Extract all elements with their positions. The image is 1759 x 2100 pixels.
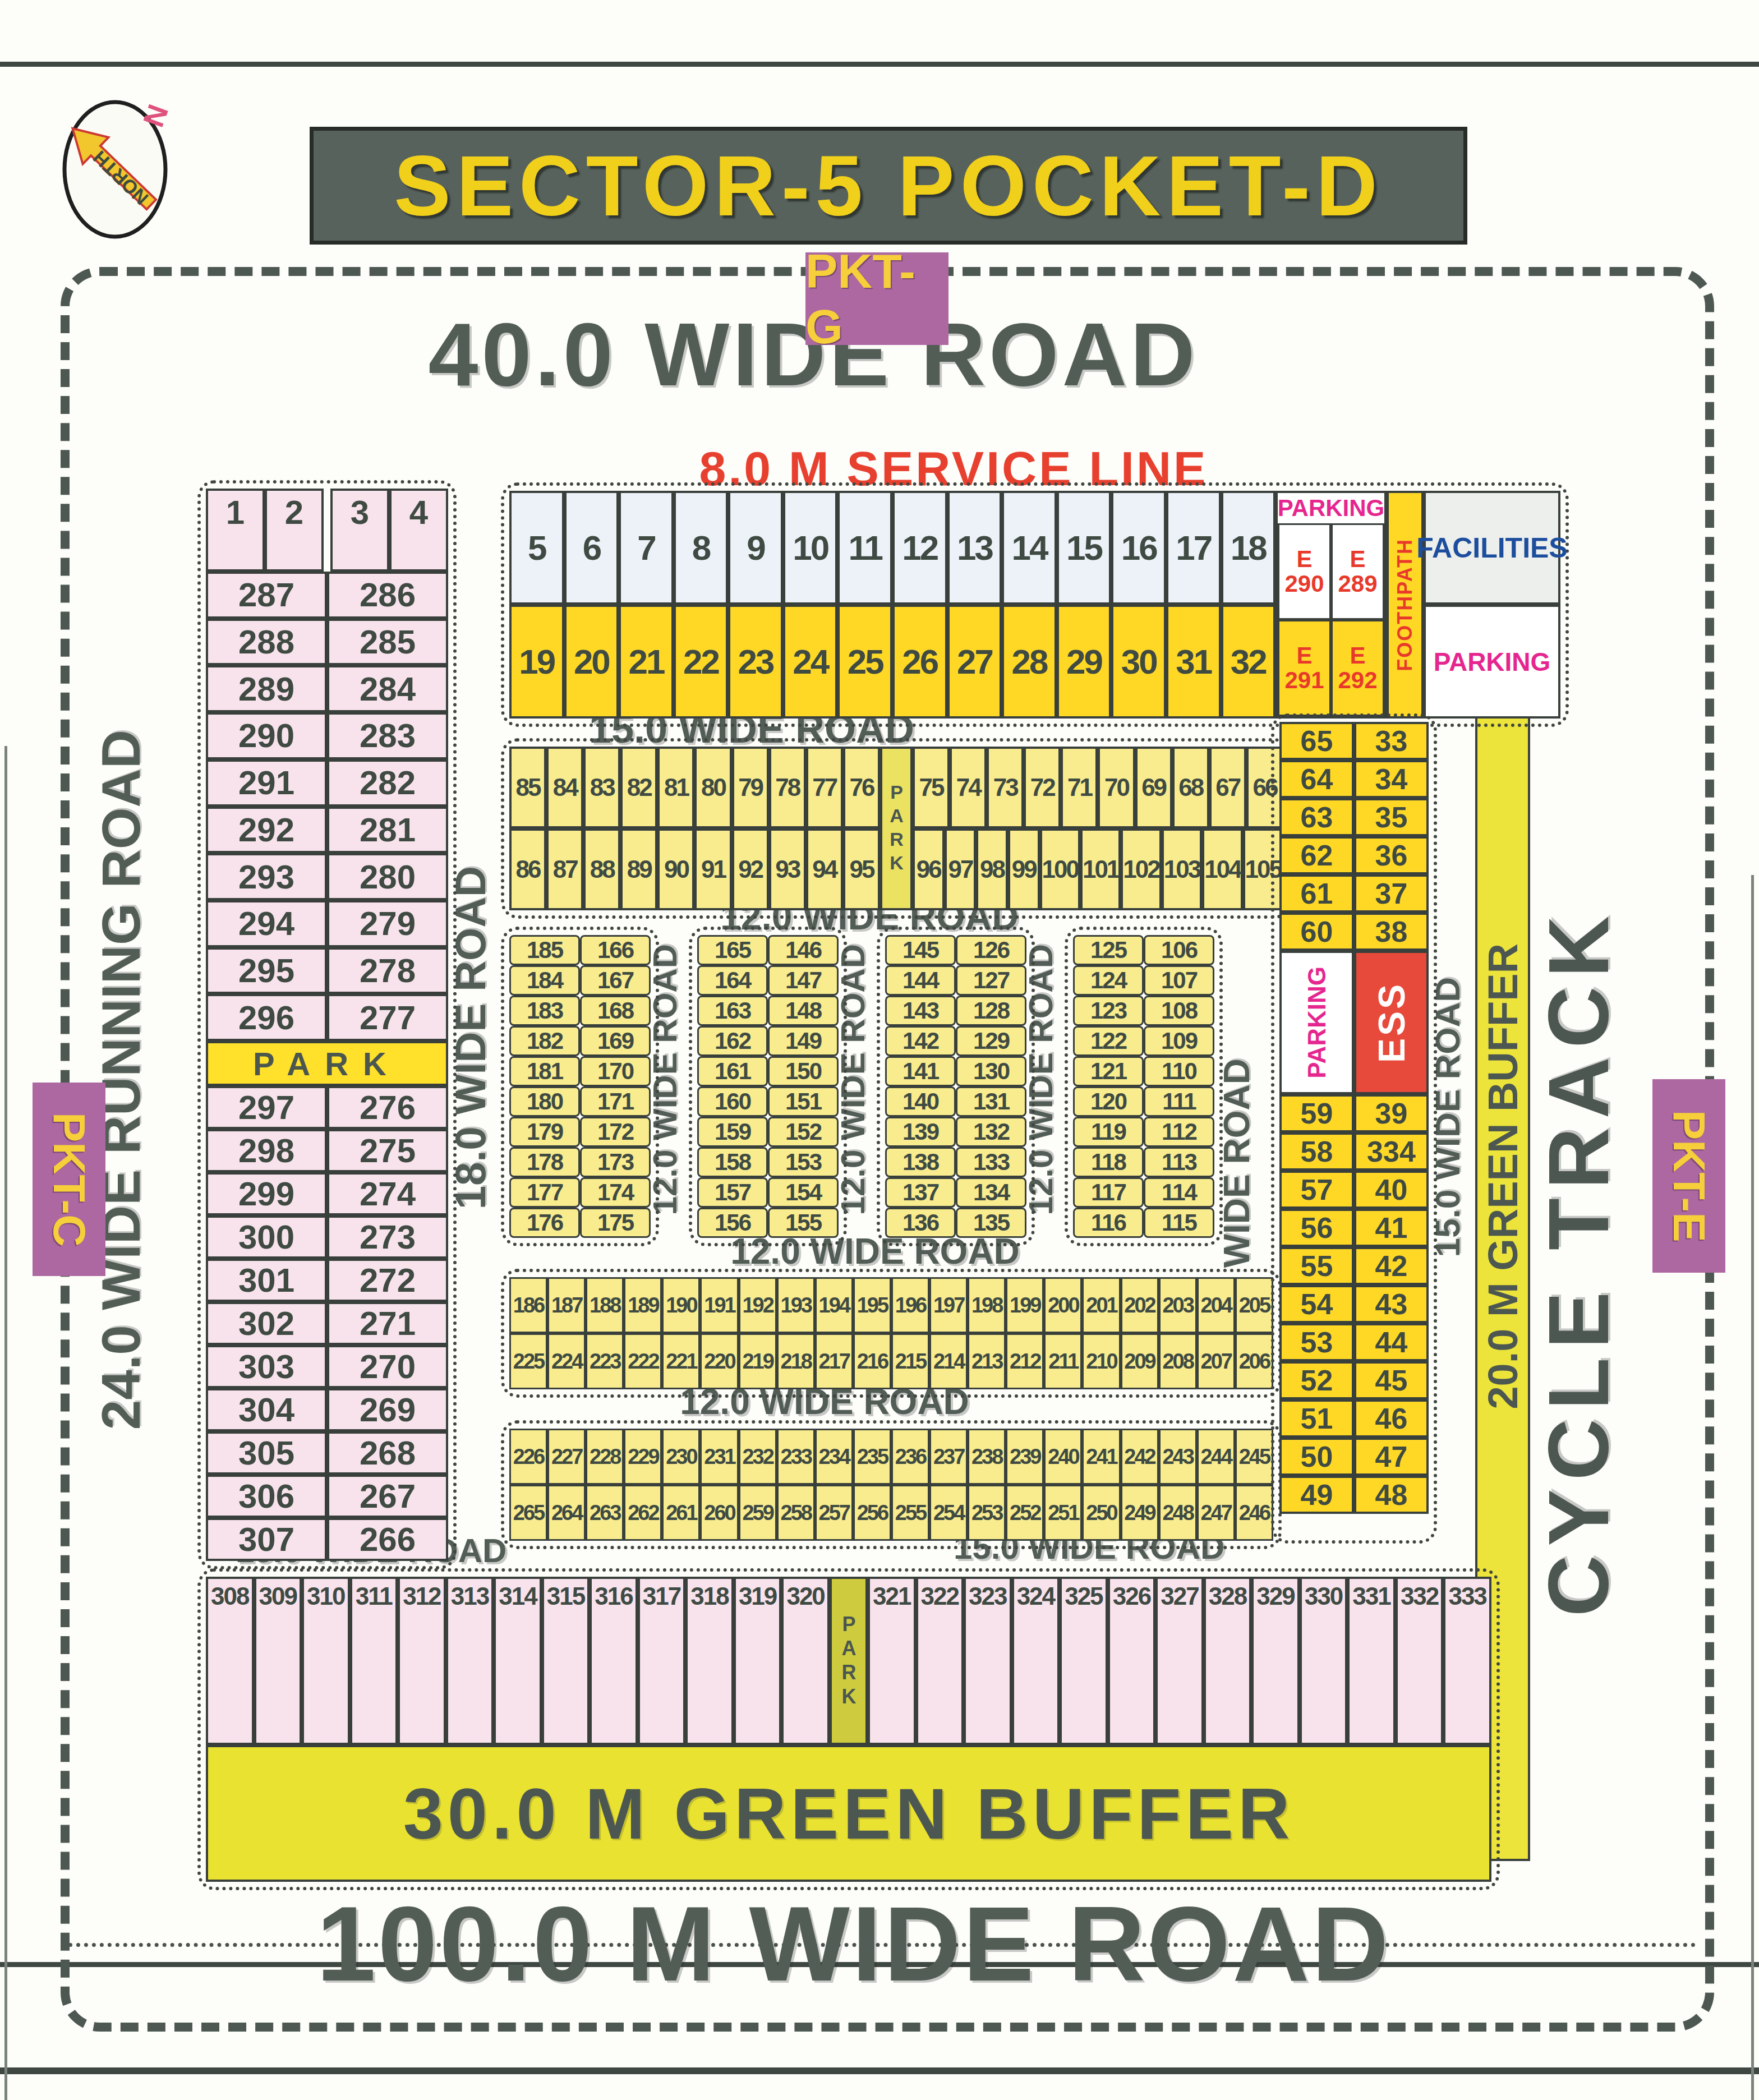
plot-cell: 180: [509, 1086, 580, 1117]
plot-cell: 126: [956, 935, 1026, 965]
plot-cell: 17: [1166, 491, 1221, 605]
plot-cell: 59: [1279, 1094, 1354, 1132]
plot-cell: 331: [1347, 1577, 1396, 1745]
plot-cell: 173: [580, 1147, 651, 1177]
plot-pair-row: 158153: [697, 1147, 839, 1177]
plot-cell: 23: [728, 605, 783, 719]
e-cells-top: E290E289: [1278, 523, 1384, 620]
plot-cell: 172: [580, 1117, 651, 1147]
block-b-row1: 1861871881891901911921931941951961971981…: [509, 1277, 1273, 1333]
plot-pair-row: 181170: [509, 1056, 651, 1086]
plot-cell: 303: [206, 1345, 327, 1388]
plot-pair-row: 300273: [206, 1215, 448, 1259]
plot-pair-row: 177174: [509, 1177, 651, 1208]
plot-cell: 124: [1073, 965, 1144, 996]
plot-cell: 311: [350, 1577, 398, 1745]
plot-cell: 5: [509, 491, 564, 605]
plot-pair-row: 142129: [885, 1026, 1026, 1056]
plot-cell: 7: [619, 491, 674, 605]
plot-cell: 48: [1354, 1476, 1429, 1514]
plot-cell: 46: [1354, 1399, 1429, 1438]
plot-cell: 120: [1073, 1086, 1144, 1117]
plot-cell: 140: [885, 1086, 956, 1117]
plot-pair-row: 159152: [697, 1117, 839, 1147]
plot-cell: 244: [1197, 1429, 1235, 1485]
block-a-row1-right: 75747372717069686766: [913, 747, 1283, 828]
pocket-tag-c-label: PKT-C: [43, 1112, 95, 1247]
plot-cell: 316: [590, 1577, 638, 1745]
green-buffer-30m-strip: 30.0 M GREEN BUFFER: [206, 1745, 1491, 1882]
facilities-cell: FACILITIES: [1424, 491, 1560, 605]
plot-cell: 84: [546, 747, 583, 828]
plot-cell: 29: [1057, 605, 1112, 719]
plot-cell: 240: [1044, 1429, 1082, 1485]
plot-cell: 31: [1166, 605, 1221, 719]
plot-cell: 326: [1108, 1577, 1156, 1745]
plot-cell: 148: [768, 996, 839, 1026]
road-label-100-wide: 100.0 M WIDE ROAD: [197, 1882, 1510, 2005]
plot-cell: 164: [697, 965, 768, 996]
foothpath-label: FOOTHPATH: [1393, 538, 1417, 671]
plot-cell: 181: [509, 1056, 580, 1086]
plot-pair-row: 5146: [1279, 1399, 1429, 1438]
plot-cell: 64: [1279, 760, 1354, 798]
plot-cell: 96: [913, 828, 945, 910]
plot-cell: 77: [806, 747, 843, 828]
plot-cell: 281: [327, 807, 448, 854]
plot-cell: 207: [1197, 1333, 1235, 1389]
plot-cell: 152: [768, 1117, 839, 1147]
plot-cell: 233: [777, 1429, 815, 1485]
pocket-tag-e: PKT-E: [1652, 1079, 1725, 1273]
plot-pair-row: 6335: [1279, 798, 1429, 836]
plot-cell: 130: [956, 1056, 1026, 1086]
plot-cell: 44: [1354, 1323, 1429, 1361]
plot-cell: 183: [509, 996, 580, 1026]
plot-cell: 304: [206, 1388, 327, 1431]
park-strip-block-a: PARK: [880, 747, 913, 910]
plot-cell: 167: [580, 965, 651, 996]
plot-pair-row: 182169: [509, 1026, 651, 1056]
plot-pair-row: 297276: [206, 1086, 448, 1129]
plot-cell: 313: [446, 1577, 494, 1745]
plot-cell: 63: [1279, 798, 1354, 836]
right-special-row: PARKING ESS: [1279, 951, 1429, 1094]
service-strip-block: 56789101112131415161718 1920212223242526…: [501, 482, 1569, 727]
plot-pair-row: 307266: [206, 1518, 448, 1561]
plot-cell: 322: [916, 1577, 964, 1745]
plot-cell: 81: [657, 747, 694, 828]
plot-cell: 54: [1279, 1285, 1354, 1323]
plot-cell: 143: [885, 996, 956, 1026]
block-c-row2: 2652642632622612602592582572562552542532…: [509, 1485, 1273, 1541]
plot-cell: 215: [891, 1333, 929, 1389]
plot-cell: 137: [885, 1177, 956, 1208]
plot-cell: 45: [1354, 1361, 1429, 1399]
plot-cell: 55: [1279, 1247, 1354, 1285]
plot-cell: 185: [509, 935, 580, 965]
plot-cell: 43: [1354, 1285, 1429, 1323]
plot-cell: 150: [768, 1056, 839, 1086]
bottom-row-left: 308309310311312313314315316317318319320: [206, 1577, 830, 1745]
bottom-row-right: 321322323324325326327328329330331332333: [868, 1577, 1491, 1745]
plot-cell: 223: [586, 1333, 624, 1389]
plot-cell: 292: [206, 807, 327, 854]
plot-cell: 119: [1073, 1117, 1144, 1147]
plot-cell: 192: [739, 1277, 777, 1333]
plot-cell: 85: [509, 747, 546, 828]
plot-cell: 135: [956, 1208, 1026, 1238]
plot-cell: 225: [509, 1333, 547, 1389]
plot-cell: 8: [674, 491, 729, 605]
plot-cell: 154: [768, 1177, 839, 1208]
block-c-row1: 2262272282292302312322332342352362372382…: [509, 1429, 1273, 1485]
plot-cell: 111: [1144, 1086, 1214, 1117]
plot-pair-row: 165146: [697, 935, 839, 965]
plot-cell: 300: [206, 1215, 327, 1259]
plot-cell: 273: [327, 1215, 448, 1259]
plot-cell: 278: [327, 947, 448, 994]
plot-pair-row: 5641: [1279, 1209, 1429, 1247]
plot-cell: 28: [1002, 605, 1057, 719]
plot-pair-row: 124107: [1073, 965, 1214, 996]
plot-cell: 158: [697, 1147, 768, 1177]
plot-pair-row: 305268: [206, 1431, 448, 1475]
e-plot-cell: E292: [1331, 620, 1384, 716]
plot-pair-row: 120111: [1073, 1086, 1214, 1117]
page-left-edge-line: [4, 746, 7, 2100]
plot-cell: 271: [327, 1302, 448, 1345]
plot-pair-row: 178173: [509, 1147, 651, 1177]
plot-cell: 156: [697, 1208, 768, 1238]
plot-cell: 76: [843, 747, 880, 828]
bottom-plot-block: 308309310311312313314315316317318319320 …: [197, 1568, 1500, 1890]
plot-cell: 219: [739, 1333, 777, 1389]
plot-cell: 128: [956, 996, 1026, 1026]
paired-plot-block-3: 1451261441271431281421291411301401311391…: [877, 927, 1035, 1246]
plot-cell: 161: [697, 1056, 768, 1086]
plot-cell: 196: [891, 1277, 929, 1333]
plot-cell: 216: [853, 1333, 891, 1389]
page-bottom-line: [0, 2067, 1759, 2074]
plot-cell: 1: [206, 489, 265, 572]
plot-cell: 36: [1354, 836, 1429, 874]
left-rows-bottom: 2972762982752992743002733012723022713032…: [206, 1086, 448, 1561]
plot-cell: 198: [968, 1277, 1006, 1333]
plot-cell: 30: [1111, 605, 1166, 719]
plot-cell: 38: [1354, 913, 1429, 951]
plot-block-b: 1861871881891901911921931941951961971981…: [501, 1269, 1282, 1398]
e-plot-cell: E291: [1278, 620, 1331, 716]
plot-cell: 174: [580, 1177, 651, 1208]
plot-cell: 272: [327, 1259, 448, 1302]
plot-cell: 125: [1073, 935, 1144, 965]
page-right-edge-line: [1751, 875, 1754, 2100]
plot-pair-row: 293280: [206, 853, 448, 900]
plot-cell: 307: [206, 1518, 327, 1561]
plot-cell: 100: [1040, 828, 1080, 910]
plot-cell: E: [1296, 643, 1312, 668]
plot-pair-row: 164147: [697, 965, 839, 996]
plot-pair-row: 183168: [509, 996, 651, 1026]
plot-cell: 332: [1396, 1577, 1444, 1745]
plot-cell: 171: [580, 1086, 651, 1117]
page-top-line: [0, 62, 1759, 67]
plot-cell: 288: [206, 619, 327, 666]
plot-cell: 261: [662, 1485, 700, 1541]
plot-cell: 187: [547, 1277, 586, 1333]
plot-pair-row: 157154: [697, 1177, 839, 1208]
plot-cell: 93: [769, 828, 806, 910]
plot-pair-row: 299274: [206, 1172, 448, 1215]
parking-label-top: PARKING: [1278, 493, 1384, 523]
plot-cell: 12: [892, 491, 947, 605]
road-label-24-running: 24.0 WIDE RUNNING ROAD: [82, 494, 160, 1666]
plot-cell: 295: [206, 947, 327, 994]
plot-cell: 33: [1354, 722, 1429, 760]
park-strip-block-a-label: PARK: [886, 781, 908, 876]
plot-cell: 99: [1008, 828, 1040, 910]
ess-label: ESS: [1370, 982, 1413, 1063]
plot-pair-row: 6533: [1279, 722, 1429, 760]
plot-cell: 232: [739, 1429, 777, 1485]
plot-cell: 109: [1144, 1026, 1214, 1056]
plot-cell: 260: [700, 1485, 738, 1541]
plot-cell: 243: [1159, 1429, 1197, 1485]
plot-cell: 310: [302, 1577, 350, 1745]
plot-cell: 248: [1159, 1485, 1197, 1541]
plot-cell: 32: [1221, 605, 1276, 719]
e-cells-bottom: E291E292: [1278, 620, 1384, 716]
plot-cell: 9: [728, 491, 783, 605]
plot-pair-row: 138133: [885, 1147, 1026, 1177]
plot-cell: 11: [837, 491, 892, 605]
plot-cell: 301: [206, 1259, 327, 1302]
plot-cell: 80: [694, 747, 731, 828]
cycle-track-text: CYCLE TRACK: [1530, 907, 1628, 1617]
plot-cell: 195: [853, 1277, 891, 1333]
plot-cell: 296: [206, 994, 327, 1041]
plot-cell: 104: [1202, 828, 1242, 910]
plot-cell: 121: [1073, 1056, 1144, 1086]
plot-cell: 39: [1354, 1094, 1429, 1132]
plot-pair-row: 161150: [697, 1056, 839, 1086]
plot-cell: 51: [1279, 1399, 1354, 1438]
plot-cell: 108: [1144, 996, 1214, 1026]
green-buffer-20m-label: 20.0 M GREEN BUFFER: [1479, 943, 1527, 1410]
plot-cell: 325: [1060, 1577, 1108, 1745]
plot-cell: 69: [1135, 747, 1172, 828]
plot-cell: 245: [1235, 1429, 1273, 1485]
plot-cell: 287: [206, 572, 327, 619]
plot-cell: 258: [777, 1485, 815, 1541]
plot-cell: 52: [1279, 1361, 1354, 1399]
plot-pair-row: 162149: [697, 1026, 839, 1056]
plot-pair-row: 5542: [1279, 1247, 1429, 1285]
plot-cell: 4: [389, 489, 448, 572]
plot-cell: 276: [327, 1086, 448, 1129]
plot-cell: 203: [1159, 1277, 1197, 1333]
plot-cell: 122: [1073, 1026, 1144, 1056]
plot-cell: 211: [1044, 1333, 1082, 1389]
plot-cell: 62: [1279, 836, 1354, 874]
plot-cell: 73: [987, 747, 1024, 828]
plot-cell: 87: [546, 828, 583, 910]
plot-cell: 308: [206, 1577, 254, 1745]
plot-cell: 256: [853, 1485, 891, 1541]
plot-pair-row: 184167: [509, 965, 651, 996]
plot-cell: 209: [1121, 1333, 1159, 1389]
plot-block-a: 85848382818079787776 8687888990919293949…: [501, 738, 1292, 919]
plot-pair-row: 5047: [1279, 1438, 1429, 1476]
plot-cell: 68: [1172, 747, 1209, 828]
plot-cell: 61: [1279, 874, 1354, 913]
plot-cell: 229: [624, 1429, 662, 1485]
plot-cell: 170: [580, 1056, 651, 1086]
plot-pair-row: 179172: [509, 1117, 651, 1147]
plot-pair-row: 294279: [206, 900, 448, 947]
plot-cell: 333: [1443, 1577, 1491, 1745]
plot-cell: 2: [265, 489, 324, 572]
plot-pair-row: 302271: [206, 1302, 448, 1345]
plot-cell: 94: [806, 828, 843, 910]
plot-pair-row: 163148: [697, 996, 839, 1026]
plot-cell: 179: [509, 1117, 580, 1147]
cycle-track-label: CYCLE TRACK: [1528, 522, 1629, 2002]
plot-cell: 142: [885, 1026, 956, 1056]
plot-cell: 89: [620, 828, 657, 910]
service-row-1: 56789101112131415161718: [509, 491, 1275, 605]
paired-plot-block-4: 1251061241071231081221091211101201111191…: [1065, 927, 1223, 1246]
plot-cell: 90: [657, 828, 694, 910]
plot-cell: 282: [327, 759, 448, 807]
plot-cell: 283: [327, 712, 448, 759]
plot-cell: 42: [1354, 1247, 1429, 1285]
plot-cell: 184: [509, 965, 580, 996]
plot-pair-row: 292281: [206, 807, 448, 854]
plot-cell: 47: [1354, 1438, 1429, 1476]
plot-cell: 34: [1354, 760, 1429, 798]
block-a-row2-left: 86878889909192939495: [509, 828, 880, 910]
plot-cell: 227: [547, 1429, 586, 1485]
plot-cell: 165: [697, 935, 768, 965]
plot-cell: 242: [1121, 1429, 1159, 1485]
plot-cell: 315: [542, 1577, 590, 1745]
plot-cell: 236: [891, 1429, 929, 1485]
plot-cell: 71: [1061, 747, 1098, 828]
block-a-row1-left: 85848382818079787776: [509, 747, 880, 828]
plot-cell: 83: [583, 747, 620, 828]
plot-cell: 194: [815, 1277, 853, 1333]
plot-cell: 155: [768, 1208, 839, 1238]
plot-pair-row: 160151: [697, 1086, 839, 1117]
plot-cell: 86: [509, 828, 546, 910]
plot-cell: 95: [843, 828, 880, 910]
plot-cell: 291: [206, 759, 327, 807]
plot-cell: 246: [1235, 1485, 1273, 1541]
plot-cell: 318: [685, 1577, 734, 1745]
plot-cell: 118: [1073, 1147, 1144, 1177]
plot-cell: 144: [885, 965, 956, 996]
plot-pair-row: 180171: [509, 1086, 651, 1117]
plot-cell: 3: [330, 489, 389, 572]
plot-cell: 238: [968, 1429, 1006, 1485]
plot-cell: 314: [494, 1577, 542, 1745]
plot-cell: 205: [1235, 1277, 1273, 1333]
plot-cell: 106: [1144, 935, 1214, 965]
plot-cell: 58: [1279, 1132, 1354, 1171]
plot-cell: 267: [327, 1475, 448, 1518]
plot-cell: 275: [327, 1129, 448, 1172]
plot-cell: 53: [1279, 1323, 1354, 1361]
parking-cell-right-label: PARKING: [1303, 966, 1331, 1079]
plot-cell: 200: [1044, 1277, 1082, 1333]
plot-cell: 231: [700, 1429, 738, 1485]
plot-pair-row: 185166: [509, 935, 651, 965]
plot-cell: 110: [1144, 1056, 1214, 1086]
road-label-24-text: 24.0 WIDE RUNNING ROAD: [90, 730, 152, 1430]
plot-pair-row: 5344: [1279, 1323, 1429, 1361]
parking-cell-right: PARKING: [1279, 951, 1354, 1094]
plot-pair-row: 6434: [1279, 760, 1429, 798]
plot-cell: 49: [1279, 1476, 1354, 1514]
plot-cell: 132: [956, 1117, 1026, 1147]
plot-cell: 168: [580, 996, 651, 1026]
plot-cell: 284: [327, 665, 448, 712]
plot-pair-row: 144127: [885, 965, 1026, 996]
plot-cell: 176: [509, 1208, 580, 1238]
plot-cell: 268: [327, 1431, 448, 1475]
plot-cell: 123: [1073, 996, 1144, 1026]
layout-plan-canvas: NORTH N SECTOR-5 POCKET-D PKT-G PKT-C PK…: [0, 0, 1759, 2100]
plot-cell: 178: [509, 1147, 580, 1177]
plot-cell: 97: [945, 828, 977, 910]
plot-cell: 88: [583, 828, 620, 910]
plot-cell: 221: [662, 1333, 700, 1389]
plot-cell: 41: [1354, 1209, 1429, 1247]
plot-cell: 241: [1082, 1429, 1120, 1485]
plot-cell: 298: [206, 1129, 327, 1172]
plot-cell: 98: [976, 828, 1008, 910]
plot-cell: 127: [956, 965, 1026, 996]
paired-plot-block-2: 1651461641471631481621491611501601511591…: [689, 927, 847, 1246]
foothpath-strip: FOOTHPATH: [1387, 491, 1424, 719]
plot-cell: 129: [956, 1026, 1026, 1056]
plot-pair-row: 118113: [1073, 1147, 1214, 1177]
plot-pair-row: 119112: [1073, 1117, 1214, 1147]
plot-cell: 107: [1144, 965, 1214, 996]
pocket-tag-c: PKT-C: [33, 1083, 105, 1276]
plot-cell: 197: [929, 1277, 968, 1333]
plot-pair-row: 141130: [885, 1056, 1026, 1086]
plot-cell: 117: [1073, 1177, 1144, 1208]
plot-cell: 138: [885, 1147, 956, 1177]
plot-pair-row: 306267: [206, 1475, 448, 1518]
plot-pair-row: 116115: [1073, 1208, 1214, 1238]
plot-cell: 191: [700, 1277, 738, 1333]
plot-cell: 289: [1338, 572, 1377, 596]
plot-cell: 21: [619, 605, 674, 719]
north-compass-icon: NORTH N: [56, 85, 191, 242]
plot-cell: 60: [1279, 913, 1354, 951]
plot-cell: 157: [697, 1177, 768, 1208]
plot-pair-row: 5740: [1279, 1171, 1429, 1209]
service-row-2: 1920212223242526272829303132: [509, 605, 1275, 719]
left-header-row: 1234: [206, 489, 448, 572]
plot-pair-row: 58334: [1279, 1132, 1429, 1171]
plot-cell: 323: [964, 1577, 1012, 1745]
plot-cell: 102: [1121, 828, 1161, 910]
